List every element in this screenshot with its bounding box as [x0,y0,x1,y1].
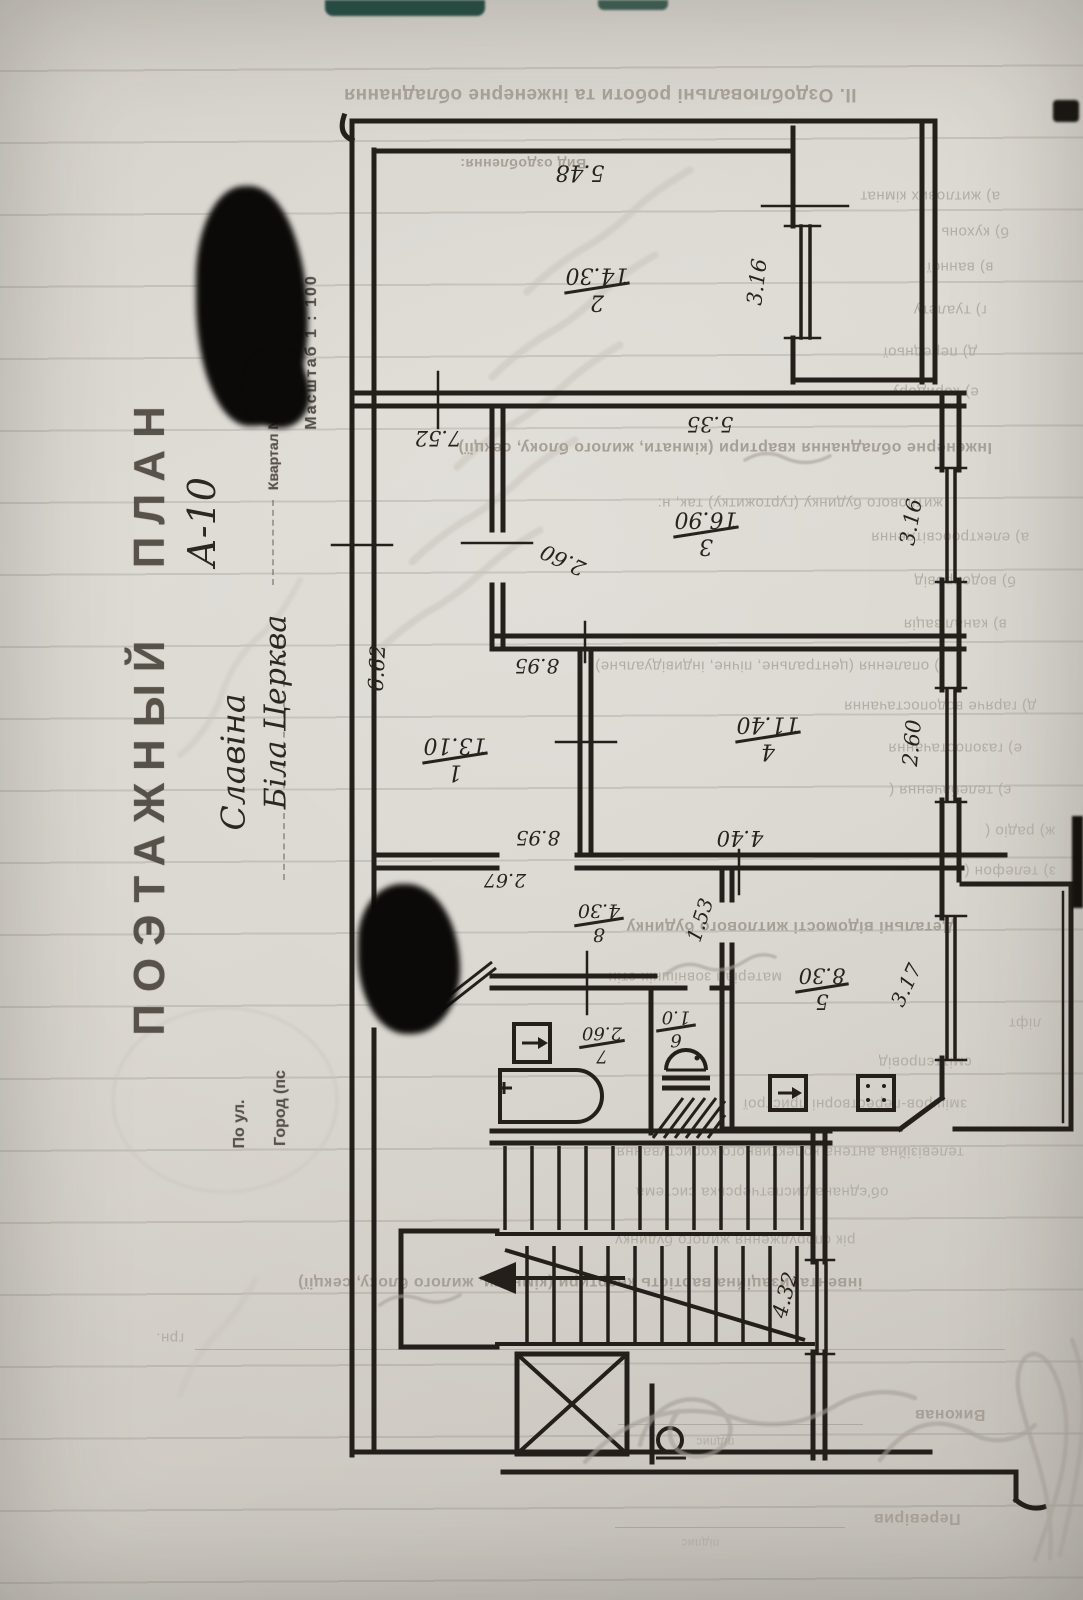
photo-edge-artifact-1 [325,0,485,16]
photo-edge-artifact-2 [598,0,668,10]
pencil-signatures [0,0,1083,1600]
scanned-floorplan-document: ІІ. Оздоблювальні роботи та інженерне об… [0,0,1083,1600]
scan-edge-mark [1072,816,1083,908]
cutoff-ink-mark [1053,100,1079,122]
